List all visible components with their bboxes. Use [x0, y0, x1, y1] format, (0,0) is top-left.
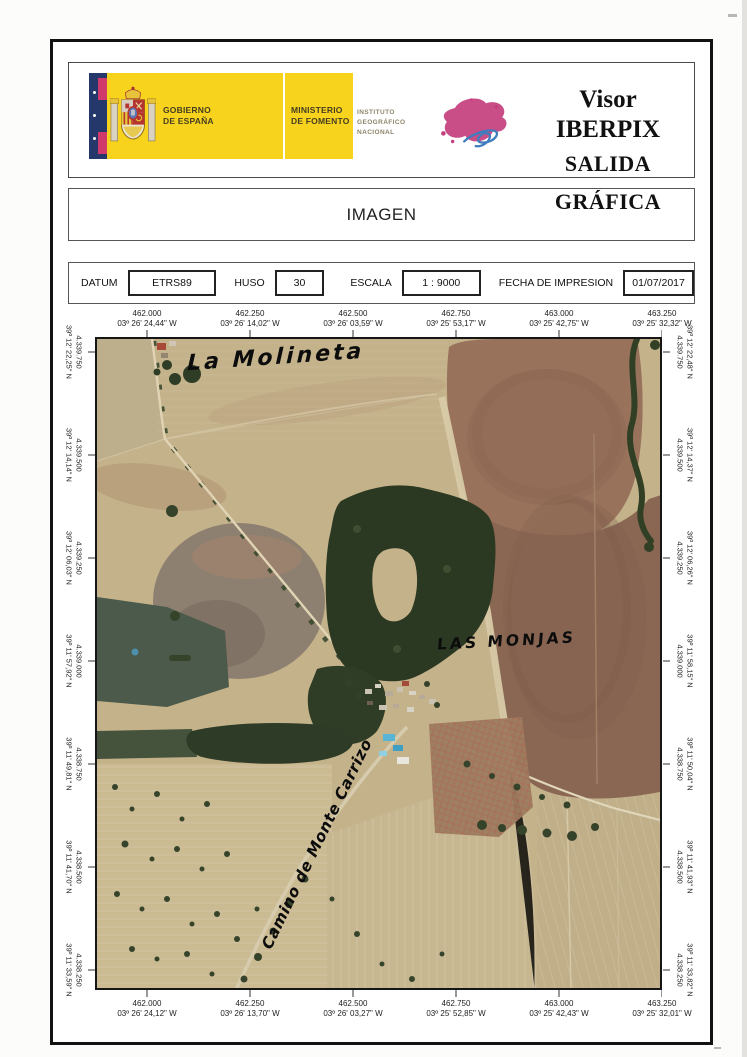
scan-speck	[714, 1047, 721, 1049]
metadata-bar: DATUM ETRS89 HUSO 30 ESCALA 1 : 9000 FEC…	[68, 262, 695, 304]
section-label-box: IMAGEN	[68, 188, 695, 241]
coordinate-label-top: 462.75003º 25' 53,17" W	[401, 309, 511, 329]
section-label: IMAGEN	[346, 205, 416, 225]
right-tick-marks	[663, 337, 670, 990]
ministerio-label: MINISTERIO DE FOMENTO	[285, 105, 353, 126]
coordinate-label-left: 4.339.75039º 12' 22,25" N	[65, 325, 84, 379]
coordinate-label-bottom: 462.25003º 26' 13,70" W	[195, 999, 305, 1019]
huso-value: 30	[275, 270, 325, 296]
coordinate-label-right: 39º 11' 58,15" N4.339.000	[676, 634, 695, 687]
left-tick-marks	[88, 337, 95, 990]
coat-of-arms-icon	[107, 83, 159, 149]
ign-logo: INSTITUTO GEOGRÁFICO NACIONAL	[357, 93, 557, 153]
gobierno-label: GOBIERNO DE ESPAÑA	[159, 105, 283, 126]
huso-label: HUSO	[234, 277, 264, 289]
coordinate-label-left: 4.338.75039º 11' 49,81" N	[65, 737, 84, 790]
coordinate-label-right: 39º 12' 22,48" N4.339.750	[676, 325, 695, 379]
coordinate-label-left: 4.338.50039º 11' 41,70" N	[65, 840, 84, 893]
coordinate-label-bottom: 463.00003º 25' 42,43" W	[504, 999, 614, 1019]
scanner-edge-artifact	[742, 0, 747, 1057]
coordinate-label-top: 462.25003º 26' 14,02" W	[195, 309, 305, 329]
coordinate-label-left: 4.338.25039º 11' 33,59" N	[65, 943, 84, 996]
coordinate-label-top: 463.25003º 25' 32,32" W	[607, 309, 717, 329]
scanned-page: GOBIERNO DE ESPAÑA MINISTERIO DE FOMENTO…	[0, 0, 747, 1057]
aerial-map: La Molineta LAS MONJAS Camino de Monte C…	[95, 337, 662, 990]
coordinate-label-bottom: 463.25003º 25' 32,01" W	[607, 999, 717, 1019]
coordinate-label-bottom: 462.50003º 26' 03,27" W	[298, 999, 408, 1019]
vineyard-field	[429, 717, 533, 837]
datum-value: ETRS89	[128, 270, 217, 296]
datum-label: DATUM	[81, 277, 118, 289]
document-frame: GOBIERNO DE ESPAÑA MINISTERIO DE FOMENTO…	[50, 39, 713, 1045]
instituto-label: INSTITUTO GEOGRÁFICO NACIONAL	[357, 108, 419, 137]
bottom-tick-marks	[95, 990, 662, 997]
flag-stripe-icon	[89, 73, 107, 159]
coordinate-label-left: 4.339.00039º 11' 57,92" N	[65, 634, 84, 687]
government-logo-bar: GOBIERNO DE ESPAÑA MINISTERIO DE FOMENTO	[89, 73, 353, 159]
coordinate-label-top: 462.50003º 26' 03,59" W	[298, 309, 408, 329]
aerial-photo	[97, 339, 662, 990]
coordinate-label-top: 463.00003º 25' 42,75" W	[504, 309, 614, 329]
coordinate-label-left: 4.339.25039º 12' 06,03" N	[65, 531, 84, 585]
top-tick-marks	[95, 330, 662, 337]
title-line-1: Visor IBERPIX	[528, 85, 688, 145]
coordinate-label-right: 39º 11' 41,93" N4.338.500	[676, 840, 695, 893]
coordinate-label-right: 39º 12' 06,26" N4.339.250	[676, 531, 695, 585]
fecha-label: FECHA DE IMPRESION	[499, 277, 613, 289]
ign-blob-icon	[419, 93, 537, 153]
coordinate-label-top: 462.00003º 26' 24,44" W	[92, 309, 202, 329]
coordinate-label-right: 39º 12' 14,37" N4.339.500	[676, 428, 695, 482]
coordinate-label-bottom: 462.00003º 26' 24,12" W	[92, 999, 202, 1019]
escala-label: ESCALA	[350, 277, 391, 289]
fecha-value: 01/07/2017	[623, 270, 694, 296]
coordinate-label-bottom: 462.75003º 25' 52,85" W	[401, 999, 511, 1019]
coordinate-label-left: 4.339.50039º 12' 14,14" N	[65, 428, 84, 482]
scan-speck	[728, 14, 737, 17]
escala-value: 1 : 9000	[402, 270, 481, 296]
coordinate-label-right: 39º 11' 33,82" N4.338.250	[676, 943, 695, 996]
coordinate-label-right: 39º 11' 50,04" N4.338.750	[676, 737, 695, 790]
header: GOBIERNO DE ESPAÑA MINISTERIO DE FOMENTO…	[68, 62, 695, 178]
